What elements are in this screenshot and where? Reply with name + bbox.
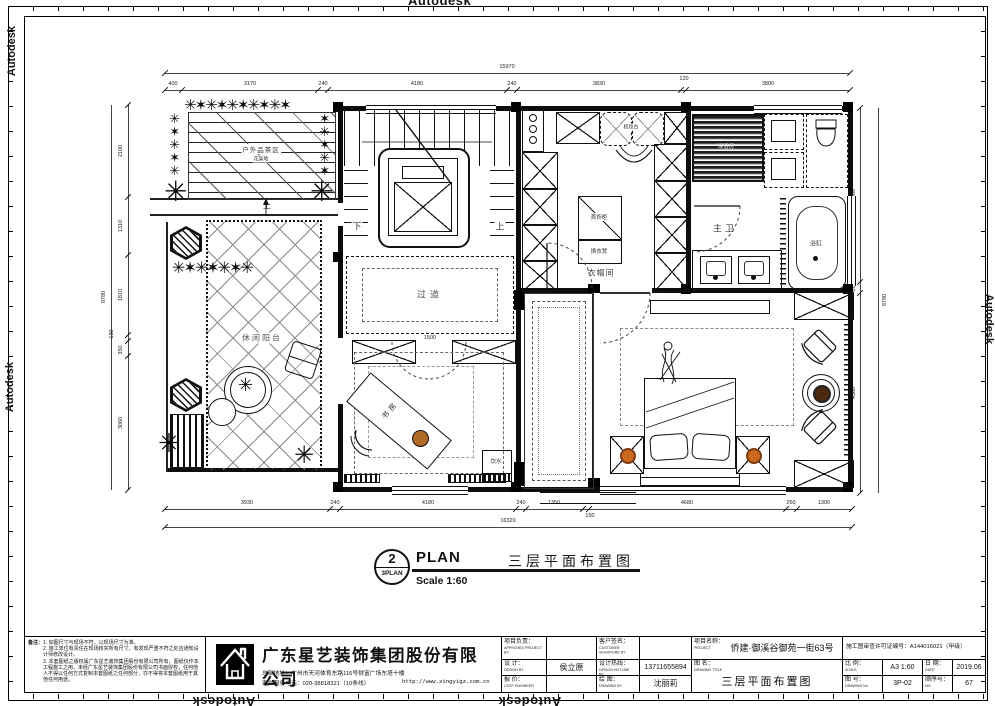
field-cost: 报 价： COST ENGINEER	[502, 676, 547, 692]
hotline-number: 13711655894	[640, 660, 692, 676]
designer-name: 侯立原	[547, 660, 597, 676]
field-label-en: DRAWING No	[845, 684, 878, 688]
notes-title: 备注：	[28, 640, 43, 683]
field-permit: 施工图审查许可证编号：A144016021（甲级）	[843, 637, 985, 660]
plan-scale: Scale 1:60	[416, 575, 467, 587]
field-cost-value	[547, 676, 597, 692]
field-label: 项目名称：	[694, 639, 724, 646]
field-label: 报 价：	[504, 677, 544, 684]
field-label: 比 例：	[845, 661, 880, 668]
field-label-en: COST ENGINEER	[504, 684, 542, 688]
field-customer-value	[640, 637, 692, 660]
field-label-en: DATE	[925, 668, 949, 672]
house-icon	[221, 649, 249, 678]
field-label-en: APPROVED PROJECT BY	[504, 646, 542, 655]
title-block: 备注： 1. 如图尺寸与现场不符，以现场尺寸为准。 2. 施工单位有责任在现场核…	[24, 636, 985, 692]
field-label: 客户签名：	[599, 639, 637, 646]
field-label-en: DESIGN BY	[504, 668, 542, 672]
field-label-en: PROJECT	[694, 646, 711, 650]
drawing-no-value: 3P-02	[883, 676, 923, 692]
field-label-en: CUSTOMER SIGNATURE BY	[599, 646, 635, 655]
company-logo	[216, 644, 254, 685]
plan-linework	[0, 0, 995, 706]
field-drawing-title: 图 名： DRAWING TITLE 三层平面布置图	[692, 660, 843, 692]
plan-number-sub: 3PLAN	[376, 568, 408, 580]
field-label: 图 号：	[845, 677, 880, 684]
note-line: 3. 本套图纸之版权属广东星艺装饰集团股份有限公司所有，图纸仅作本工程施工之用，…	[43, 659, 201, 684]
permit-number: 施工图审查许可证编号：A144016021（甲级）	[846, 641, 982, 650]
plan-title-cn: 三层平面布置图	[508, 551, 634, 571]
plan-number: 2	[376, 551, 408, 568]
field-label: 日 期：	[925, 661, 950, 668]
field-label-en: NO.	[925, 684, 949, 688]
draftsman-name: 沈丽莉	[640, 676, 692, 692]
date-value: 2019.06	[953, 660, 985, 676]
field-seq: 顺序号： NO.	[923, 676, 953, 692]
field-approved-value	[547, 637, 597, 660]
company-phone: 客户服务电话：020-38818321（10条线）	[262, 678, 370, 687]
field-label-en: SCALE	[845, 668, 878, 672]
company-address: 总部地址：广州市天河体育东路116号财富广场东塔十楼	[262, 668, 405, 677]
field-scale: 比 例： SCALE	[843, 660, 883, 676]
plan-title-en: PLAN	[416, 549, 461, 566]
plan-number-bubble: 2 3PLAN	[374, 549, 410, 585]
notes-box: 备注： 1. 如图尺寸与现场不符，以现场尺寸为准。 2. 施工单位有责任在现场核…	[24, 637, 206, 692]
field-label: 设计热线：	[599, 661, 637, 668]
field-label: 设 计：	[504, 661, 544, 668]
field-design: 设 计： DESIGN BY	[502, 660, 547, 676]
field-drawing-no: 图 号： DRAWING No	[843, 676, 883, 692]
company-website[interactable]: http://www.xingyigz.com.cn	[402, 679, 490, 685]
field-label-en: DESIGN HOTLINE BY	[599, 668, 635, 676]
drawing-title: 三层平面布置图	[694, 673, 840, 689]
field-customer: 客户签名： CUSTOMER SIGNATURE BY	[597, 637, 640, 660]
field-approved: 项目负责： APPROVED PROJECT BY	[502, 637, 547, 660]
field-draw: 绘 图： DRAWING BY	[597, 676, 640, 692]
scale-value: A3 1:60	[883, 660, 923, 676]
seq-no-value: 67	[953, 676, 985, 692]
field-label-en: DRAWING BY	[599, 684, 635, 688]
note-line: 2. 施工单位有责任在现场核实所有尺寸，有发现严重不符之处应通知设计师修改设计。	[43, 646, 201, 658]
field-project: 项目名称： PROJECT 侨建·御溪谷御苑一街63号	[692, 637, 843, 660]
field-label: 绘 图：	[599, 677, 637, 684]
company-box: 广东星艺装饰集团股份有限公司 总部地址：广州市天河体育东路116号财富广场东塔十…	[206, 637, 502, 692]
field-label: 顺序号：	[925, 677, 950, 684]
drawing-sheet: Autodesk Autodesk Autodesk Autodesk Auto…	[0, 0, 995, 706]
field-hotline: 设计热线： DESIGN HOTLINE BY	[597, 660, 640, 676]
field-label-en: DRAWING TITLE	[694, 668, 833, 672]
field-date: 日 期： DATE	[923, 660, 953, 676]
field-label: 项目负责：	[504, 639, 544, 646]
field-label: 图 名：	[694, 661, 714, 667]
